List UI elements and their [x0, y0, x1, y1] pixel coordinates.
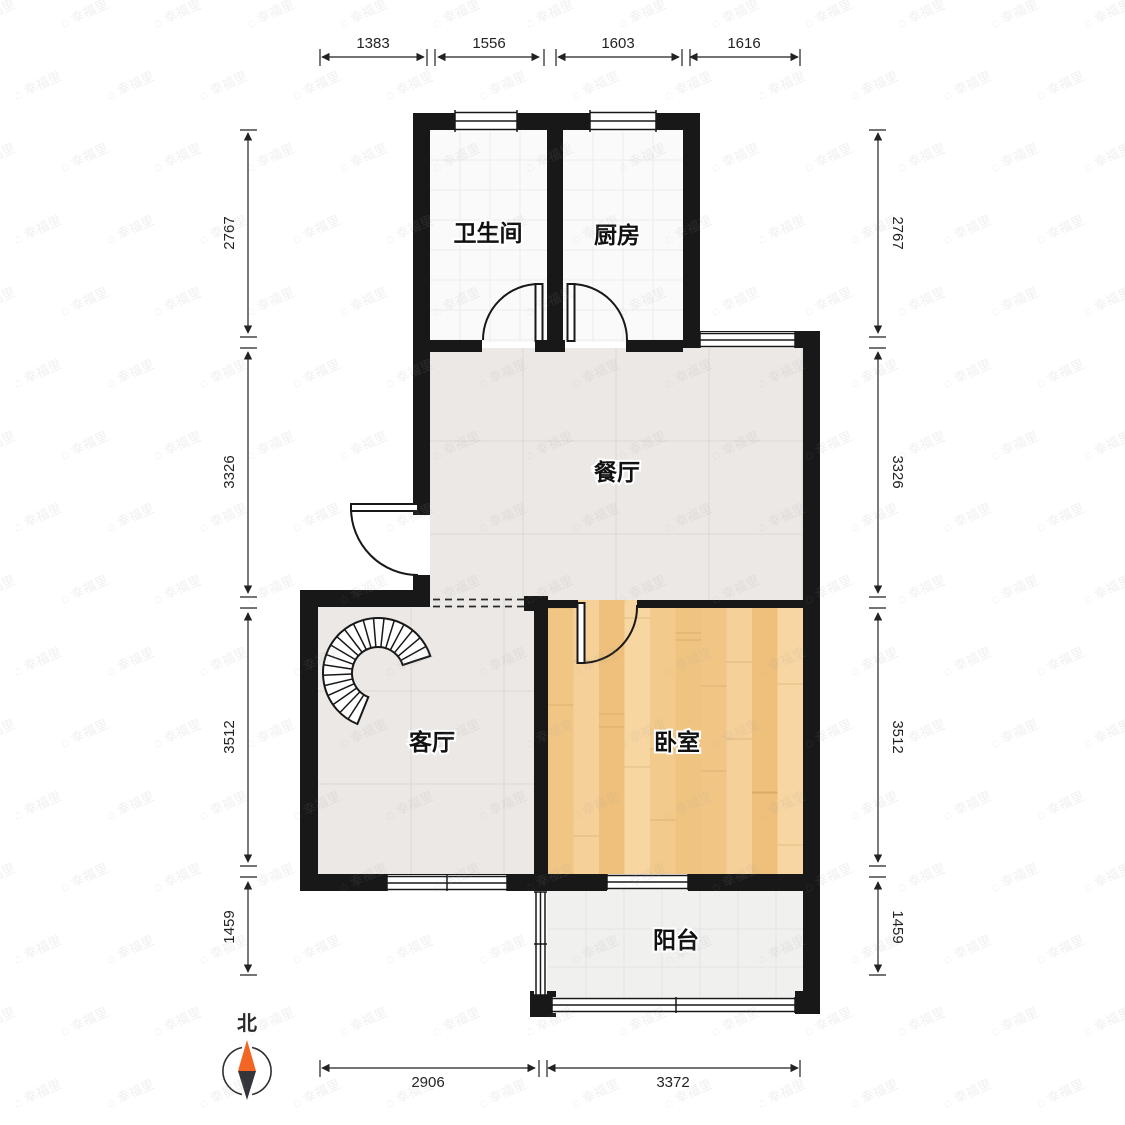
watermark: ⌂ 幸福里 — [58, 141, 110, 175]
watermark: ⌂ 幸福里 — [383, 1077, 435, 1111]
kitchen-window — [590, 110, 656, 132]
watermark: ⌂ 幸福里 — [0, 429, 17, 463]
wall-segment — [430, 340, 482, 352]
watermark: ⌂ 幸福里 — [11, 645, 63, 679]
watermark: ⌂ 幸福里 — [988, 0, 1040, 31]
watermark: ⌂ 幸福里 — [11, 1077, 63, 1111]
watermark: ⌂ 幸福里 — [895, 573, 947, 607]
watermark: ⌂ 幸福里 — [1034, 789, 1086, 823]
watermark: ⌂ 幸福里 — [197, 357, 249, 391]
watermark: ⌂ 幸福里 — [244, 717, 296, 751]
watermark: ⌂ 幸福里 — [104, 933, 156, 967]
watermark: ⌂ 幸福里 — [941, 69, 993, 103]
watermark: ⌂ 幸福里 — [941, 213, 993, 247]
compass-needle-north — [238, 1040, 256, 1071]
watermark: ⌂ 幸福里 — [290, 357, 342, 391]
watermark: ⌂ 幸福里 — [104, 789, 156, 823]
watermark: ⌂ 幸福里 — [1081, 1005, 1125, 1039]
watermark: ⌂ 幸福里 — [0, 861, 17, 895]
watermark: ⌂ 幸福里 — [58, 717, 110, 751]
watermark: ⌂ 幸福里 — [941, 357, 993, 391]
floorplan-drawing: 卫生间 厨房 餐厅 客厅 卧室 阳台 1383 1556 1603 1616 — [0, 0, 1125, 1125]
watermark: ⌂ 幸福里 — [1034, 213, 1086, 247]
watermark: ⌂ 幸福里 — [941, 933, 993, 967]
watermark: ⌂ 幸福里 — [895, 429, 947, 463]
wall-segment — [300, 590, 318, 891]
watermark: ⌂ 幸福里 — [802, 0, 854, 31]
watermark: ⌂ 幸福里 — [569, 1077, 621, 1111]
watermark: ⌂ 幸福里 — [1034, 357, 1086, 391]
watermark: ⌂ 幸福里 — [104, 213, 156, 247]
watermark: ⌂ 幸福里 — [197, 789, 249, 823]
watermark: ⌂ 幸福里 — [895, 141, 947, 175]
watermark: ⌂ 幸福里 — [0, 573, 17, 607]
watermark: ⌂ 幸福里 — [104, 357, 156, 391]
watermark: ⌂ 幸福里 — [709, 0, 761, 31]
watermark: ⌂ 幸福里 — [476, 933, 528, 967]
watermark: ⌂ 幸福里 — [151, 141, 203, 175]
watermark: ⌂ 幸福里 — [197, 645, 249, 679]
watermark: ⌂ 幸福里 — [988, 1005, 1040, 1039]
watermark: ⌂ 幸福里 — [988, 429, 1040, 463]
watermark: ⌂ 幸福里 — [0, 717, 17, 751]
watermark: ⌂ 幸福里 — [104, 501, 156, 535]
watermark: ⌂ 幸福里 — [11, 357, 63, 391]
bathroom-window — [455, 110, 517, 132]
wood-plank — [752, 600, 778, 874]
watermark: ⌂ 幸福里 — [1034, 933, 1086, 967]
watermark: ⌂ 幸福里 — [848, 69, 900, 103]
watermark: ⌂ 幸福里 — [988, 717, 1040, 751]
watermark: ⌂ 幸福里 — [290, 1077, 342, 1111]
watermark: ⌂ 幸福里 — [383, 933, 435, 967]
watermark: ⌂ 幸福里 — [58, 861, 110, 895]
watermark: ⌂ 幸福里 — [197, 69, 249, 103]
watermark: ⌂ 幸福里 — [290, 213, 342, 247]
watermark: ⌂ 幸福里 — [244, 0, 296, 31]
dim-top-1: 1556 — [472, 35, 505, 52]
watermark: ⌂ 幸福里 — [244, 573, 296, 607]
balcony-left-window — [534, 892, 547, 995]
room-label-dining: 餐厅 — [594, 459, 640, 485]
watermark: ⌂ 幸福里 — [1081, 285, 1125, 319]
watermark: ⌂ 幸福里 — [58, 573, 110, 607]
wall-segment — [803, 331, 820, 1014]
wall-segment — [795, 991, 820, 1014]
dim-top-2: 1603 — [601, 35, 634, 52]
watermark: ⌂ 幸福里 — [941, 501, 993, 535]
watermark: ⌂ 幸福里 — [1034, 1077, 1086, 1111]
watermark: ⌂ 幸福里 — [709, 285, 761, 319]
watermark: ⌂ 幸福里 — [895, 0, 947, 31]
wall-segment — [626, 340, 683, 352]
watermark: ⌂ 幸福里 — [151, 1005, 203, 1039]
watermark: ⌂ 幸福里 — [1081, 141, 1125, 175]
watermark: ⌂ 幸福里 — [104, 69, 156, 103]
watermark: ⌂ 幸福里 — [337, 141, 389, 175]
watermark: ⌂ 幸福里 — [848, 645, 900, 679]
watermark: ⌂ 幸福里 — [662, 69, 714, 103]
watermark: ⌂ 幸福里 — [523, 0, 575, 31]
dimension-chain-left: 2767 3326 3512 1459 — [221, 130, 257, 975]
dimension-chain-bottom: 2906 3372 — [320, 1060, 800, 1091]
watermark: ⌂ 幸福里 — [11, 933, 63, 967]
watermark: ⌂ 幸福里 — [1081, 717, 1125, 751]
dim-top-0: 1383 — [356, 35, 389, 52]
watermark: ⌂ 幸福里 — [1034, 645, 1086, 679]
watermark: ⌂ 幸福里 — [755, 1077, 807, 1111]
watermark: ⌂ 幸福里 — [151, 573, 203, 607]
watermark: ⌂ 幸福里 — [755, 69, 807, 103]
watermark: ⌂ 幸福里 — [58, 285, 110, 319]
watermark: ⌂ 幸福里 — [151, 429, 203, 463]
watermark: ⌂ 幸福里 — [941, 1077, 993, 1111]
watermark: ⌂ 幸福里 — [11, 213, 63, 247]
watermark: ⌂ 幸福里 — [197, 1077, 249, 1111]
watermark: ⌂ 幸福里 — [58, 1005, 110, 1039]
watermark: ⌂ 幸福里 — [337, 429, 389, 463]
watermark: ⌂ 幸福里 — [11, 501, 63, 535]
watermark: ⌂ 幸福里 — [1034, 69, 1086, 103]
watermark: ⌂ 幸福里 — [290, 933, 342, 967]
watermark: ⌂ 幸福里 — [1081, 0, 1125, 31]
watermark: ⌂ 幸福里 — [1081, 429, 1125, 463]
watermark: ⌂ 幸福里 — [104, 645, 156, 679]
watermark: ⌂ 幸福里 — [244, 141, 296, 175]
dim-left-2: 3512 — [221, 720, 238, 753]
wall-segment — [548, 600, 578, 608]
watermark: ⌂ 幸福里 — [11, 69, 63, 103]
balcony-bottom-window — [552, 997, 795, 1013]
watermark: ⌂ 幸福里 — [151, 0, 203, 31]
watermark: ⌂ 幸福里 — [244, 429, 296, 463]
watermark: ⌂ 幸福里 — [104, 1077, 156, 1111]
watermark: ⌂ 幸福里 — [941, 789, 993, 823]
watermark: ⌂ 幸福里 — [337, 0, 389, 31]
dimension-chain-top: 1383 1556 1603 1616 — [320, 35, 800, 66]
watermark: ⌂ 幸福里 — [802, 141, 854, 175]
watermark: ⌂ 幸福里 — [895, 1005, 947, 1039]
watermark: ⌂ 幸福里 — [197, 501, 249, 535]
watermark: ⌂ 幸福里 — [290, 501, 342, 535]
watermark: ⌂ 幸福里 — [0, 141, 17, 175]
watermark: ⌂ 幸福里 — [848, 933, 900, 967]
watermark: ⌂ 幸福里 — [988, 573, 1040, 607]
watermark: ⌂ 幸福里 — [848, 357, 900, 391]
watermark: ⌂ 幸福里 — [430, 0, 482, 31]
dining-window — [700, 332, 795, 348]
watermark: ⌂ 幸福里 — [616, 0, 668, 31]
watermark: ⌂ 幸福里 — [151, 285, 203, 319]
watermark: ⌂ 幸福里 — [988, 141, 1040, 175]
watermark: ⌂ 幸福里 — [1081, 861, 1125, 895]
watermark: ⌂ 幸福里 — [244, 285, 296, 319]
watermark: ⌂ 幸福里 — [1034, 501, 1086, 535]
wood-plank — [778, 600, 804, 874]
watermark: ⌂ 幸福里 — [988, 861, 1040, 895]
watermark: ⌂ 幸福里 — [848, 501, 900, 535]
watermark: ⌂ 幸福里 — [802, 285, 854, 319]
watermark: ⌂ 幸福里 — [0, 1005, 17, 1039]
watermark: ⌂ 幸福里 — [244, 1005, 296, 1039]
dim-top-3: 1616 — [727, 35, 760, 52]
watermark: ⌂ 幸福里 — [290, 69, 342, 103]
watermark: ⌂ 幸福里 — [895, 285, 947, 319]
watermark: ⌂ 幸福里 — [151, 861, 203, 895]
watermark: ⌂ 幸福里 — [11, 789, 63, 823]
watermark: ⌂ 幸福里 — [476, 69, 528, 103]
dim-left-1: 3326 — [221, 455, 238, 488]
watermark: ⌂ 幸福里 — [383, 69, 435, 103]
wall-segment — [413, 130, 430, 515]
watermark: ⌂ 幸福里 — [895, 861, 947, 895]
watermark: ⌂ 幸福里 — [58, 0, 110, 31]
dimension-chain-right: 2767 3326 3512 1459 — [869, 130, 906, 975]
watermark: ⌂ 幸福里 — [988, 285, 1040, 319]
watermark: ⌂ 幸福里 — [151, 717, 203, 751]
watermark: ⌂ 幸福里 — [476, 1077, 528, 1111]
watermark: ⌂ 幸福里 — [941, 645, 993, 679]
watermark: ⌂ 幸福里 — [755, 213, 807, 247]
watermark: ⌂ 幸福里 — [848, 1077, 900, 1111]
floorplan-canvas: 卫生间 厨房 餐厅 客厅 卧室 阳台 1383 1556 1603 1616 — [0, 0, 1125, 1125]
watermark: ⌂ 幸福里 — [337, 285, 389, 319]
watermark: ⌂ 幸福里 — [337, 1005, 389, 1039]
watermark: ⌂ 幸福里 — [0, 285, 17, 319]
watermark: ⌂ 幸福里 — [0, 0, 17, 31]
watermark: ⌂ 幸福里 — [430, 1005, 482, 1039]
watermark: ⌂ 幸福里 — [1081, 573, 1125, 607]
watermark: ⌂ 幸福里 — [848, 789, 900, 823]
watermark: ⌂ 幸福里 — [569, 69, 621, 103]
watermark: ⌂ 幸福里 — [58, 429, 110, 463]
watermark: ⌂ 幸福里 — [709, 141, 761, 175]
